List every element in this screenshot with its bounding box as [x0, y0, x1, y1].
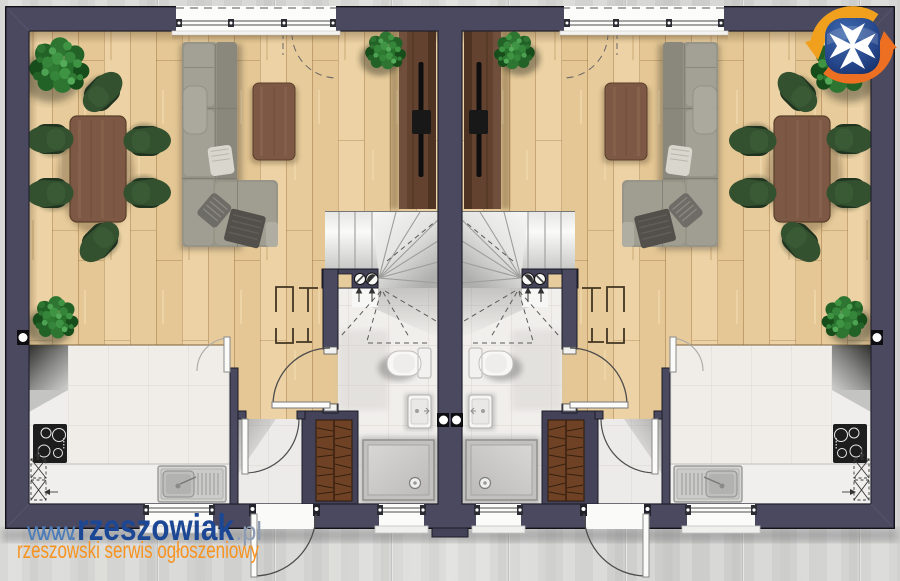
svg-text:rzeszowski serwis ogłoszeniowy: rzeszowski serwis ogłoszeniowy [17, 537, 259, 563]
